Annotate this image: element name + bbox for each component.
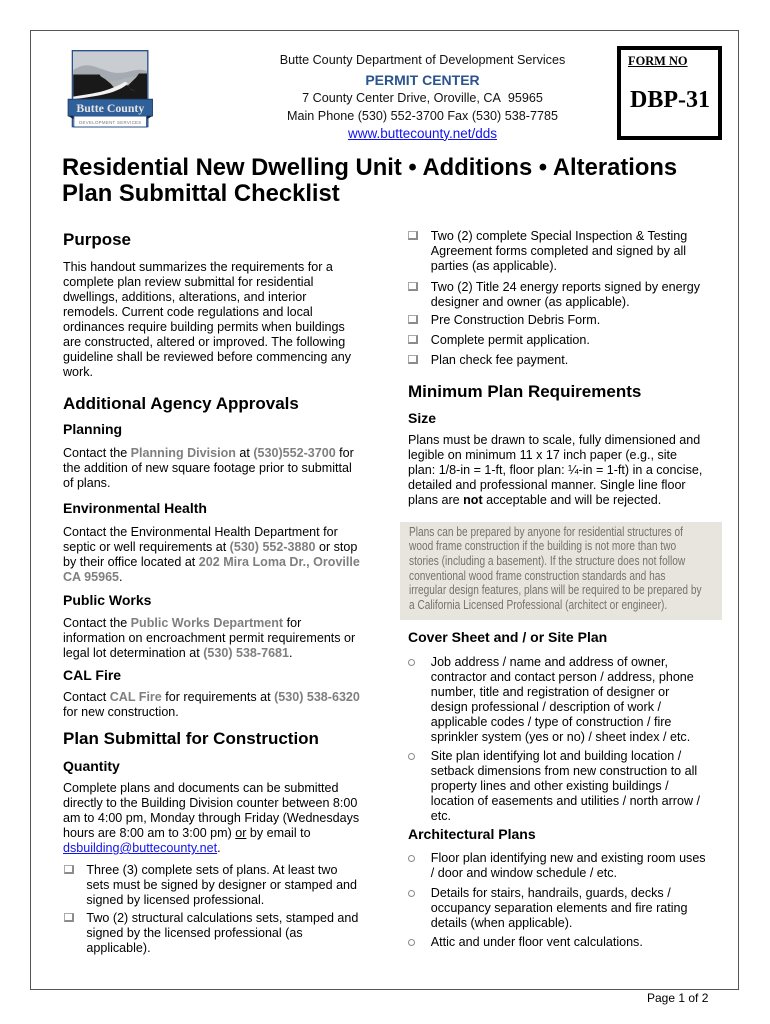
- svg-text:DEVELOPMENT SERVICES: DEVELOPMENT SERVICES: [79, 120, 141, 125]
- svg-text:Butte County: Butte County: [76, 101, 144, 115]
